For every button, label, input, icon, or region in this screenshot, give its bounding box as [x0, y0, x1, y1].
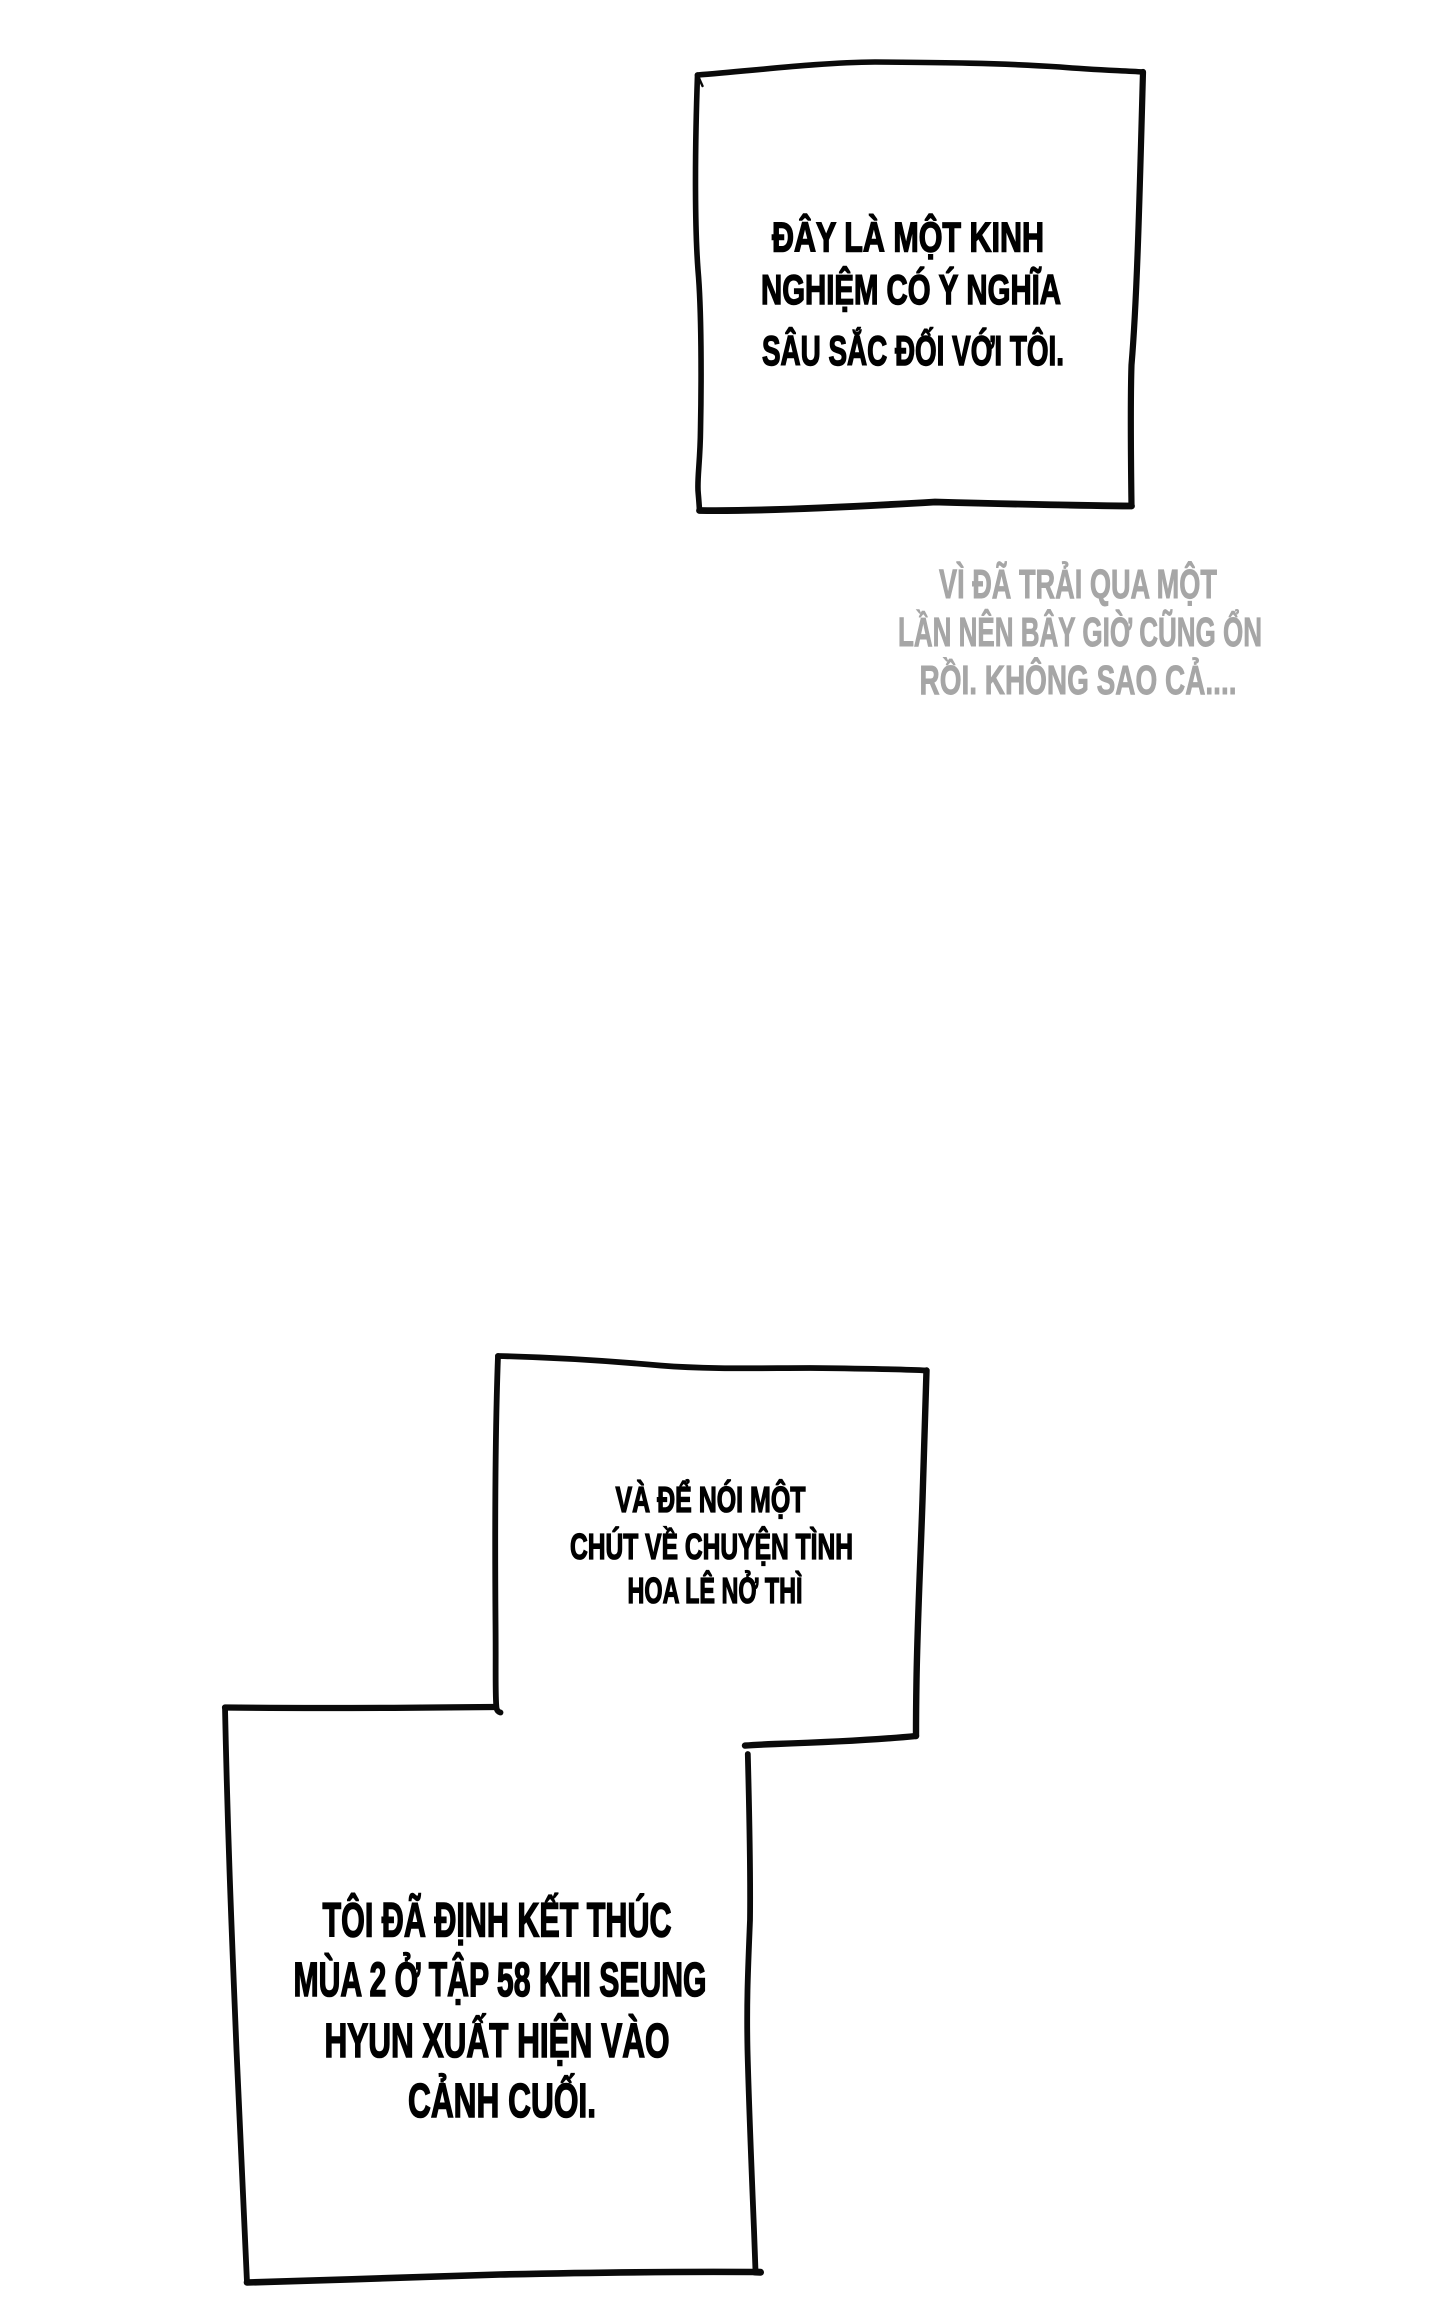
svg-text:TÔI ĐÃ ĐỊNH KẾT THÚC: TÔI ĐÃ ĐỊNH KẾT THÚC [323, 1893, 672, 1948]
svg-text:CẢNH CUỐI.: CẢNH CUỐI. [408, 2073, 596, 2128]
svg-text:MÙA 2 Ở TẬP 58 KHI SEUNG: MÙA 2 Ở TẬP 58 KHI SEUNG [294, 1952, 707, 2007]
svg-text:VÀ ĐỂ NÓI MỘT: VÀ ĐỂ NÓI MỘT [616, 1478, 806, 1520]
svg-text:NGHIỆM CÓ Ý NGHĨA: NGHIỆM CÓ Ý NGHĨA [761, 266, 1061, 313]
svg-text:SÂU SẮC ĐỐI VỚI TÔI.: SÂU SẮC ĐỐI VỚI TÔI. [762, 327, 1064, 374]
svg-text:ĐÂY LÀ MỘT KINH: ĐÂY LÀ MỘT KINH [772, 214, 1044, 261]
svg-text:HOA LÊ NỞ THÌ: HOA LÊ NỞ THÌ [628, 1569, 803, 1611]
svg-text:VÌ ĐÃ TRẢI QUA MỘT: VÌ ĐÃ TRẢI QUA MỘT [939, 561, 1217, 607]
svg-text:CHÚT VỀ CHUYỆN TÌNH: CHÚT VỀ CHUYỆN TÌNH [570, 1525, 853, 1567]
svg-text:HYUN XUẤT HIỆN VÀO: HYUN XUẤT HIỆN VÀO [325, 2013, 670, 2068]
svg-text:LẦN NÊN BÂY GIỜ CŨNG ỔN: LẦN NÊN BÂY GIỜ CŨNG ỔN [898, 608, 1262, 655]
svg-text:RỒI. KHÔNG SAO CẢ....: RỒI. KHÔNG SAO CẢ.... [920, 657, 1237, 703]
